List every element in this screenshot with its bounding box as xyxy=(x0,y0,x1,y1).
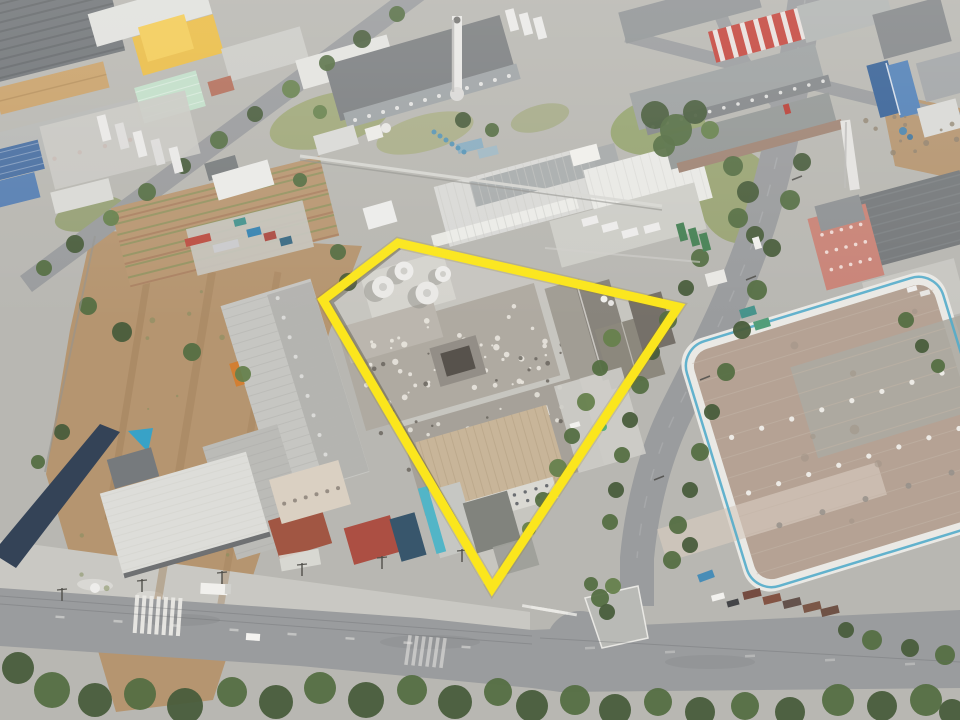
aerial-photo-frame xyxy=(0,0,960,720)
warm-tint xyxy=(0,0,960,720)
aerial-photo-industrial-district xyxy=(0,0,960,720)
